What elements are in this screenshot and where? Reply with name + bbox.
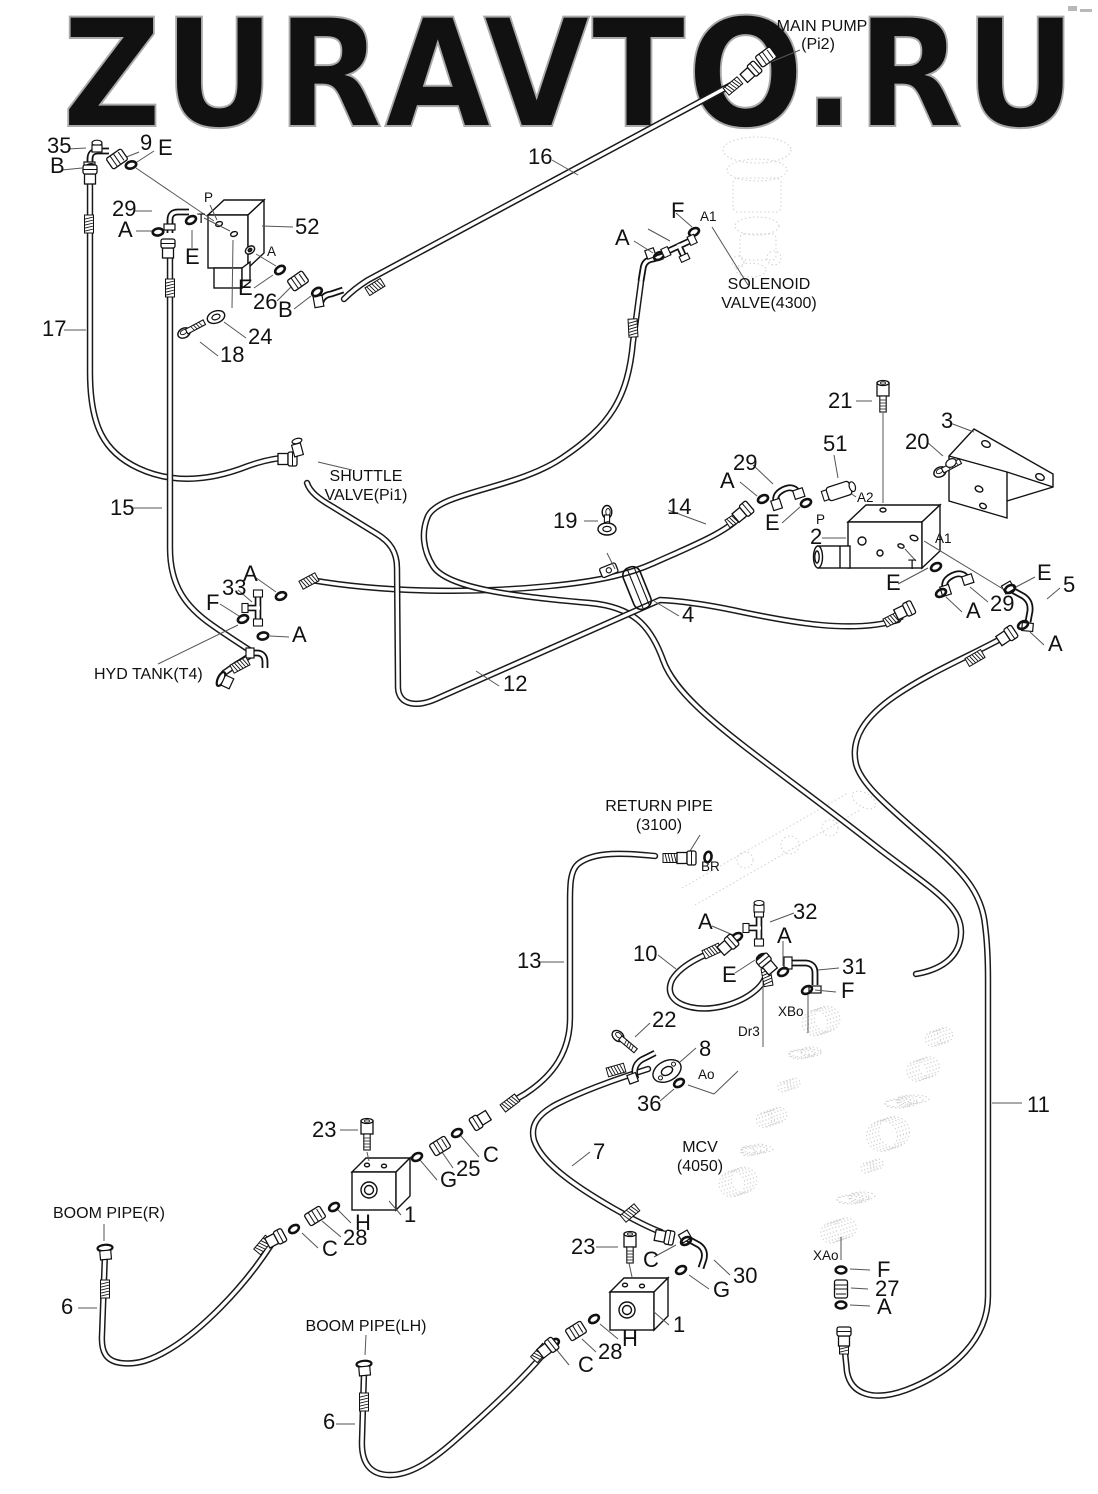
fitting-letter-c-28: C (578, 1352, 594, 1377)
fitting-letter-b-5: B (278, 297, 293, 322)
o-ring (288, 1223, 301, 1235)
o-ring (935, 587, 948, 598)
hose-threads (299, 573, 319, 589)
hose-line (670, 946, 767, 1008)
leader-line (735, 960, 755, 973)
ghost-detail (870, 1120, 901, 1151)
port-label-p-5: P (816, 512, 825, 527)
fitting-letter-e-3: E (185, 244, 200, 269)
part-number-16-3: 16 (528, 144, 552, 169)
ghost-detail (722, 1170, 748, 1196)
o-ring (275, 591, 287, 601)
o-ring (411, 1151, 424, 1162)
part-number-36-28: 36 (637, 1091, 661, 1116)
pipe-end (215, 671, 235, 691)
part-number-3-10: 3 (941, 408, 953, 433)
leader-line (322, 1221, 341, 1237)
leader-line (688, 1085, 714, 1094)
part-number-1-41: 1 (404, 1202, 416, 1227)
socket-bolt (624, 1232, 636, 1264)
leader-line (572, 1152, 590, 1166)
hose-threads (628, 319, 638, 337)
hex-bolt (176, 318, 207, 340)
fitting-letter-c-21: C (483, 1142, 499, 1167)
port-label-xbo-9: XBo (778, 1004, 804, 1019)
part-number-20-11: 20 (905, 429, 929, 454)
fitting-letter-a-17: A (698, 909, 713, 934)
fitting-letter-b-1: B (50, 153, 65, 178)
leader-line (629, 1263, 632, 1277)
component-label-hyd-tank-t4-6: HYD TANK(T4) (94, 666, 203, 683)
o-ring (836, 1267, 847, 1274)
part-number-13-29: 13 (517, 948, 541, 973)
leader-line (254, 275, 273, 288)
part-number-2-13: 2 (810, 524, 822, 549)
leader-line (680, 1048, 696, 1062)
leader-line (420, 1160, 437, 1180)
leader-line (770, 913, 794, 922)
part-number-1-42: 1 (673, 1312, 685, 1337)
port-label-dr3-10: Dr3 (738, 1024, 760, 1039)
leader-line (658, 955, 676, 969)
ghost-detail (873, 1159, 883, 1169)
ghost-detail (913, 1059, 933, 1079)
component-label-pi2-1: (Pi2) (801, 36, 835, 53)
part-number-9-1: 9 (140, 130, 152, 155)
leader-line (634, 241, 653, 253)
leader-line (270, 636, 289, 637)
hose-end-fitting (716, 933, 740, 956)
part-number-14-19: 14 (667, 494, 691, 519)
hose-line (845, 636, 1006, 1396)
fitting-letter-f-15: F (206, 590, 219, 615)
ghost-detail (873, 1119, 904, 1150)
ghost-detail (876, 1118, 907, 1149)
ghost-detail (870, 1160, 880, 1170)
port-label-t-7: T (908, 557, 916, 572)
port-label-a2-4: A2 (857, 490, 874, 505)
fitting-letter-a-30: A (877, 1294, 892, 1319)
component-label-mcv-9: MCV (682, 1139, 718, 1156)
adapter-fitting (304, 1206, 326, 1227)
part-number-52-4: 52 (295, 214, 319, 239)
fitting-letter-e-12: E (1037, 560, 1052, 585)
fitting-letter-a-7: A (615, 225, 630, 250)
leader-line (834, 455, 838, 478)
leader-line (582, 1339, 596, 1352)
component-label-solenoid-2: SOLENOID (728, 276, 811, 293)
ghost-detail (725, 1169, 751, 1195)
valve-block-2 (814, 505, 941, 568)
fitting-letter-f-20: F (841, 978, 854, 1003)
o-ring (800, 498, 813, 509)
leader-line (365, 1335, 366, 1355)
ghost-detail (789, 1049, 821, 1057)
fitting-letter-a-8: A (720, 468, 735, 493)
ghost-detail (861, 1163, 871, 1173)
hoses (90, 84, 1006, 1475)
part-number-24-6: 24 (248, 324, 272, 349)
leader-line (262, 226, 293, 227)
part-number-7-30: 7 (593, 1139, 605, 1164)
fitting-letter-a-18: A (777, 923, 792, 948)
port-label-a1-3: A1 (700, 209, 717, 224)
part-number-23-31: 23 (312, 1117, 336, 1142)
hydraulic-piping-diagram: ZURAVTO.RU (0, 0, 1098, 1494)
leader-line (950, 423, 974, 432)
fitting-letter-h-23: H (355, 1210, 371, 1235)
ghost-detail (867, 1121, 898, 1152)
ghost-detail (805, 1009, 831, 1035)
o-ring (930, 561, 943, 572)
hose-line (362, 1351, 546, 1475)
o-ring (588, 1313, 601, 1325)
leader-line (158, 625, 238, 664)
leader-line (1047, 588, 1060, 599)
component-label-valve-4300-3: VALVE(4300) (721, 295, 816, 312)
leader-line (660, 1089, 674, 1101)
leader-line (1016, 577, 1035, 587)
hose-end-fitting (83, 165, 97, 184)
ghost-detail (811, 1007, 837, 1033)
leader-line (62, 168, 82, 170)
leader-line (302, 1233, 318, 1248)
watermark-text: ZURAVTO.RU (62, 0, 1078, 162)
pipe-end (97, 1244, 113, 1260)
o-ring (836, 1302, 847, 1309)
part-number-31-25: 31 (842, 954, 866, 979)
part-number-19-18: 19 (553, 508, 577, 533)
ghost-detail (864, 1162, 874, 1172)
fitting-letter-e-4: E (238, 275, 253, 300)
leader-line (782, 507, 800, 523)
o-ring (675, 1264, 688, 1275)
fitting-letter-a-14: A (243, 561, 258, 586)
pipe-end (356, 1360, 372, 1376)
hose-end-fitting (469, 1109, 493, 1131)
component-label-valve-pi1-5: VALVE(Pi1) (325, 487, 408, 504)
o-ring (757, 494, 770, 505)
valve-block-1-left (352, 1158, 410, 1210)
ghost-detail (787, 1079, 797, 1089)
valve-block-1-right (610, 1278, 668, 1330)
ghost-detail (781, 1081, 791, 1091)
port-label-ao-11: Ao (698, 1067, 715, 1082)
part-number-18-7: 18 (220, 342, 244, 367)
hose-end-fitting (161, 239, 175, 258)
leader-line (851, 1288, 868, 1289)
part-number-10-24: 10 (633, 941, 657, 966)
leader-line (220, 604, 239, 616)
hose-threads (101, 1280, 110, 1298)
part-number-29-15: 29 (733, 450, 757, 475)
part-number-28-36: 28 (598, 1339, 622, 1364)
port-label-xao-12: XAo (813, 1248, 839, 1263)
part-number-25-32: 25 (456, 1156, 480, 1181)
leader-line (442, 1152, 453, 1168)
ghost-detail (808, 1008, 834, 1034)
fitting-letter-e-9: E (765, 510, 780, 535)
hose-threads (166, 279, 175, 297)
cartridge-51 (821, 479, 858, 503)
ghost-detail (885, 1099, 917, 1107)
ghost-detail (784, 1080, 794, 1090)
fitting-letter-a-2: A (118, 217, 133, 242)
fitting-letter-a-16: A (292, 622, 307, 647)
hose-end-fitting (677, 851, 696, 865)
hose-threads (500, 1094, 520, 1112)
part-number-12-21: 12 (503, 671, 527, 696)
leader-line (461, 1136, 479, 1157)
leader-line (818, 968, 839, 970)
port-label-a1-6: A1 (935, 531, 952, 546)
part-number-17-2: 17 (42, 316, 66, 341)
leader-line (294, 296, 311, 309)
leader-line (556, 1349, 569, 1365)
parts-diagram-page: ZURAVTO.RU (0, 0, 1098, 1494)
washer (205, 308, 226, 325)
fitting-letter-c-24: C (322, 1236, 338, 1261)
fitting-letter-g-22: G (440, 1167, 457, 1192)
socket-bolt (361, 1119, 373, 1151)
part-number-29-16: 29 (990, 591, 1014, 616)
part-number-11-38: 11 (1027, 1092, 1050, 1117)
component-label-main-pump-0: MAIN PUMP (777, 18, 868, 35)
fitting-nut (246, 648, 254, 658)
fitting-letter-f-6: F (671, 198, 684, 223)
leader-line (740, 482, 757, 496)
ghost-detail (728, 1168, 754, 1194)
leader-line (1030, 632, 1044, 645)
leader-line (689, 1275, 709, 1289)
port-label-a-2: A (267, 244, 276, 259)
part-number-30-35: 30 (733, 1263, 757, 1288)
o-ring (257, 632, 269, 641)
component-label-return-pipe-7: RETURN PIPE (605, 798, 713, 815)
component-label-shuttle-4: SHUTTLE (330, 468, 403, 485)
ghost-mcv (719, 1006, 952, 1243)
part-number-15-17: 15 (110, 495, 134, 520)
component-label-3100-8: (3100) (636, 817, 682, 834)
part-number-51-12: 51 (823, 431, 847, 456)
ghost-detail (837, 1195, 869, 1203)
port-label-p-0: P (204, 190, 213, 205)
fitting-letter-f-29: F (877, 1257, 890, 1282)
part-number-6-39: 6 (61, 1294, 73, 1319)
leader-line (648, 229, 670, 241)
leader-line (337, 1209, 351, 1223)
component-label-boom-pipe-lh-12: BOOM PIPE(LH) (306, 1318, 427, 1335)
part-number-6-40: 6 (323, 1409, 335, 1434)
component-label-4050-10: (4050) (677, 1158, 723, 1175)
part-number-23-34: 23 (571, 1234, 595, 1259)
hose-threads (360, 1393, 369, 1411)
fitting-letter-g-26: G (713, 1277, 730, 1302)
leader-line (200, 342, 218, 356)
ghost-detail (879, 1117, 910, 1148)
part-number-32-23: 32 (793, 899, 817, 924)
component-label-boom-pipe-r-11: BOOM PIPE(R) (53, 1205, 165, 1222)
leader-line (635, 1023, 650, 1037)
ghost-detail (790, 1078, 800, 1088)
ghost-detail (741, 1145, 773, 1153)
fitting-letter-e-19: E (722, 962, 737, 987)
part-number-8-27: 8 (699, 1036, 711, 1061)
leader-line (224, 322, 246, 338)
socket-bolt (877, 381, 889, 413)
port-label-t-1: T (197, 211, 205, 226)
part-number-22-26: 22 (652, 1007, 676, 1032)
o-ring (152, 228, 163, 236)
fitting-nut (164, 224, 175, 230)
fitting-letter-e-0: E (158, 135, 173, 160)
adapter-fitting (565, 1321, 587, 1342)
part-number-26-5: 26 (253, 289, 277, 314)
mounting-bracket-3 (949, 429, 1053, 518)
o-ring (777, 966, 790, 977)
fitting-letter-a-13: A (1048, 631, 1063, 656)
ghost-detail (897, 1095, 929, 1103)
fitting-letter-c-25: C (643, 1247, 659, 1272)
hose-end-fitting (837, 1327, 851, 1346)
fitting-letter-e-10: E (886, 570, 901, 595)
hose-line (102, 1245, 271, 1363)
hex-bolt (610, 1028, 639, 1054)
port-label-br-8: BR (701, 859, 720, 874)
hose-threads (85, 215, 94, 233)
ghost-detail (778, 1082, 788, 1092)
labels: MAIN PUMP(Pi2)SOLENOIDVALVE(4300)SHUTTLE… (42, 18, 1075, 1434)
tee-fitting (743, 910, 764, 946)
leader-line (714, 1071, 738, 1094)
leader-line (690, 835, 700, 851)
leader-line (946, 597, 962, 612)
ghost-detail (867, 1161, 877, 1171)
o-ring (801, 984, 814, 995)
valve-block-52 (208, 200, 264, 288)
o-ring (673, 1077, 686, 1089)
adapter-fitting (429, 1136, 451, 1157)
fitting-letter-a-11: A (966, 598, 981, 623)
part-number-5-14: 5 (1063, 572, 1075, 597)
leader-line (850, 1305, 870, 1306)
leader-line (850, 1269, 870, 1270)
elbow-fitting (938, 570, 976, 597)
leader-line (714, 1260, 730, 1275)
o-ring (185, 214, 198, 225)
adapter-fitting (835, 1280, 848, 1298)
part-number-21-9: 21 (828, 388, 852, 413)
part-number-4-22: 4 (682, 602, 694, 627)
hose-end-fitting (654, 1228, 675, 1245)
fitting-letter-h-27: H (622, 1326, 638, 1351)
